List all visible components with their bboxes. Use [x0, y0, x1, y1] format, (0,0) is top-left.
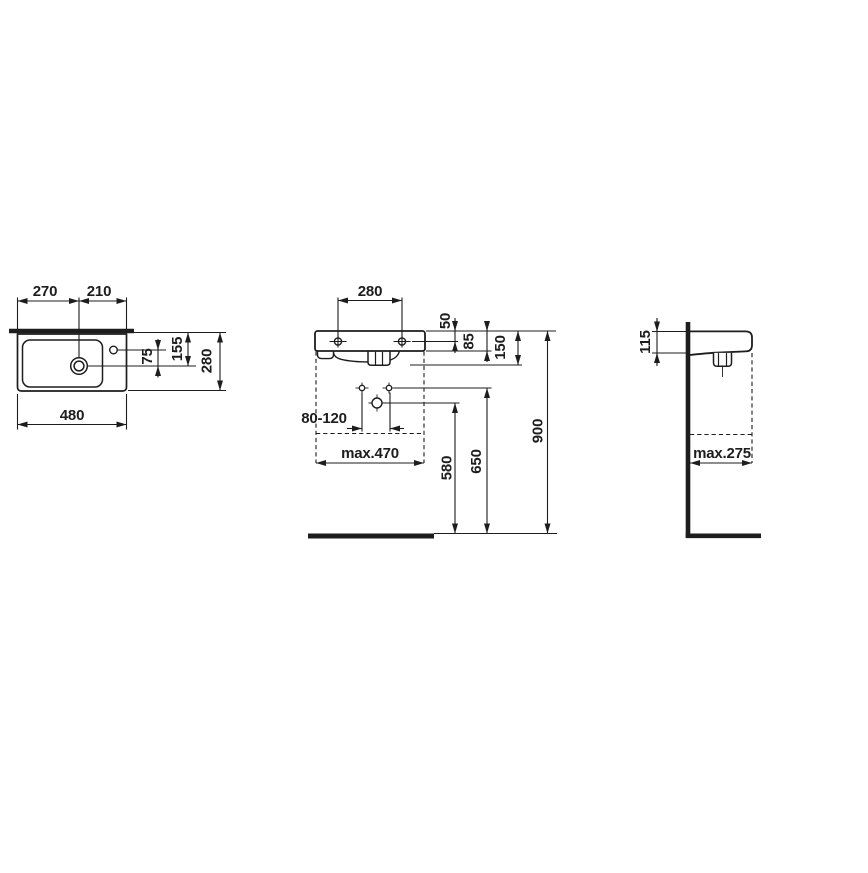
side-view: 115 max.275 — [637, 318, 761, 538]
dim-650: 650 — [468, 388, 487, 534]
dim-480: 480 — [18, 394, 127, 430]
dim-label-max-470: max.470 — [341, 445, 399, 462]
waste-connection-icon — [369, 395, 386, 412]
dim-label-650: 650 — [468, 449, 485, 473]
basin-profile-side — [690, 331, 752, 355]
dim-150: 150 — [492, 331, 518, 365]
dim-label-210: 210 — [87, 283, 111, 300]
dim-label-max-275: max.275 — [693, 445, 751, 462]
dim-label-80-120: 80-120 — [301, 410, 347, 427]
dim-label-150: 150 — [492, 335, 509, 359]
supply-connection-icon — [383, 383, 396, 394]
dim-label-270: 270 — [33, 283, 57, 300]
waste-trap-outline-side — [714, 353, 732, 366]
dim-label-75: 75 — [139, 348, 156, 364]
tap-hole-icon — [110, 346, 118, 354]
dim-50: 50 — [437, 313, 455, 353]
dim-85: 85 — [461, 321, 488, 362]
dim-900: 900 — [530, 331, 548, 534]
dim-max-275: max.275 — [690, 445, 752, 463]
dim-label-480: 480 — [60, 407, 84, 424]
front-view: 280 — [301, 283, 557, 536]
drain-icon — [71, 358, 88, 375]
dim-label-580: 580 — [439, 456, 456, 480]
plan-view: 270 210 480 75 155 280 — [9, 283, 226, 430]
dim-label-50: 50 — [437, 313, 454, 329]
technical-drawing-page: 270 210 480 75 155 280 — [0, 0, 868, 868]
dim-label-280-holes: 280 — [358, 283, 382, 300]
dim-label-85: 85 — [461, 333, 478, 349]
dim-label-280-depth: 280 — [199, 349, 216, 373]
dim-label-900: 900 — [530, 419, 547, 443]
overflow-outlet-outline — [318, 351, 334, 359]
dim-label-155: 155 — [169, 337, 186, 361]
washbasin-dimension-drawing: 270 210 480 75 155 280 — [0, 0, 868, 868]
dim-label-115: 115 — [637, 330, 654, 354]
supply-connection-icon — [356, 383, 369, 394]
waste-trap-outline-front — [368, 352, 390, 366]
dim-115: 115 — [637, 318, 657, 366]
dim-80-120: 80-120 — [301, 393, 404, 432]
dim-max-470: max.470 — [316, 445, 424, 463]
dim-580: 580 — [439, 403, 456, 534]
